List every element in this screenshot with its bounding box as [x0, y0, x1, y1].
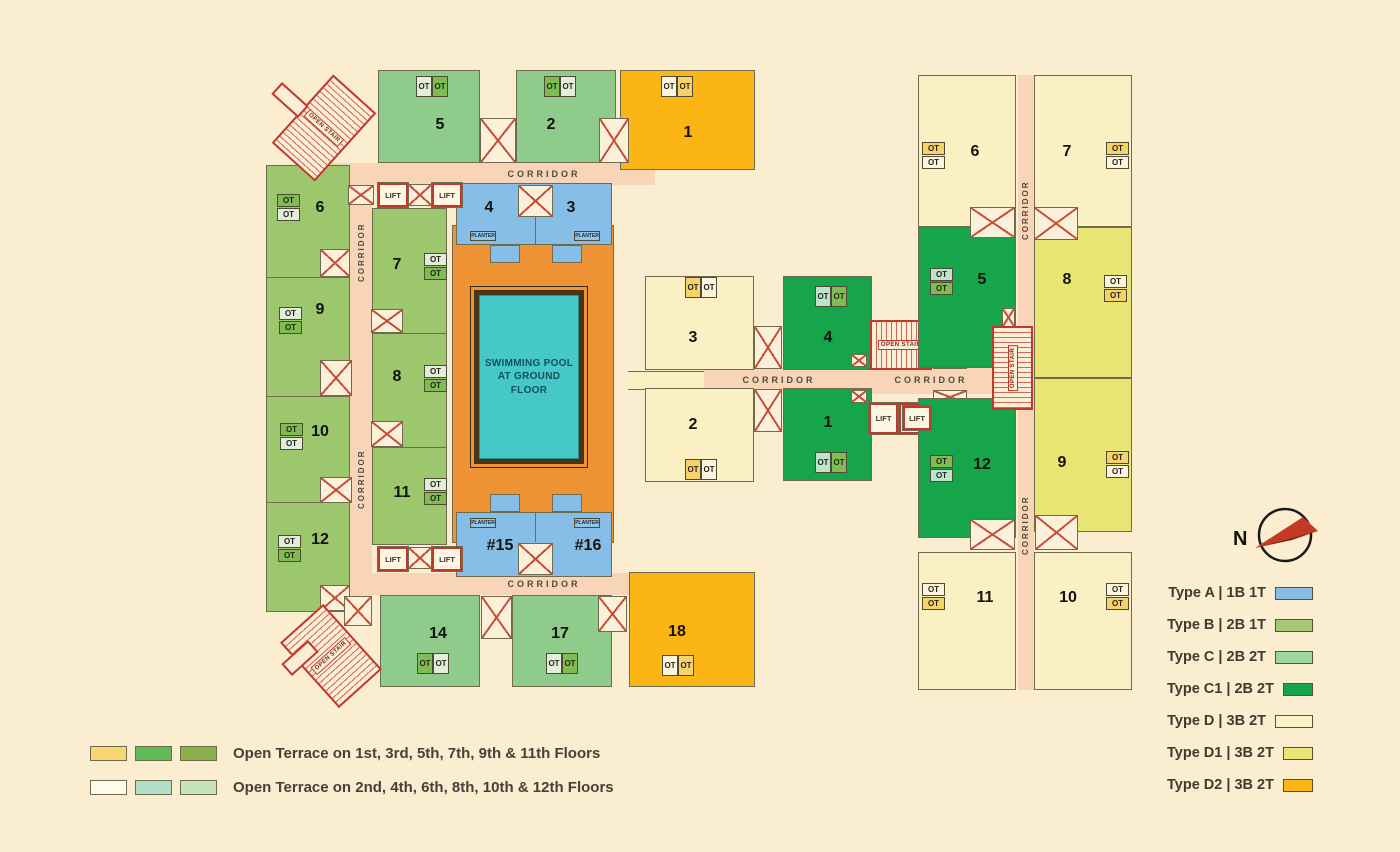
type-legend-row: Type D | 3B 2T [1167, 713, 1313, 729]
unit-number: 4 [824, 329, 833, 347]
open-terrace-badge: OT [416, 76, 432, 97]
unit-divider [266, 396, 350, 397]
open-terrace-badge: OT [278, 549, 301, 562]
open-terrace-badge: OT [922, 142, 945, 155]
unit-number: 10 [311, 423, 329, 441]
open-terrace-badge: OT [1106, 597, 1129, 610]
type-legend-swatch [1275, 715, 1313, 728]
unit-number: 7 [393, 256, 402, 274]
open-terrace-badge: OT [424, 253, 447, 266]
open-terrace-badge: OT [662, 655, 678, 676]
lift-box: LIFT [378, 547, 408, 571]
type-legend-label: Type C1 | 2B 2T [1167, 681, 1274, 697]
shaft-x-box [344, 596, 372, 626]
open-terrace-badge: OT [279, 321, 302, 334]
open-stair-label: OPEN STAIR [310, 637, 351, 675]
lift-box: LIFT [903, 406, 931, 430]
open-terrace-badge: OT [417, 653, 433, 674]
open-terrace-badge: OT [277, 194, 300, 207]
planter-label: PLANTER [574, 518, 600, 528]
unit-left-15-tab [490, 494, 520, 512]
terrace-swatch [180, 746, 217, 761]
unit-right-10 [1034, 552, 1132, 690]
lift-box: LIFT [869, 403, 898, 434]
compass-icon [1252, 504, 1322, 566]
shaft-x-box [851, 354, 867, 367]
open-terrace-badge: OT [815, 452, 831, 473]
open-stair-right: OPEN STAIR [992, 326, 1033, 410]
type-legend-row: Type B | 2B 1T [1167, 617, 1313, 633]
unit-right-8 [1034, 227, 1132, 378]
terrace-swatch [180, 780, 217, 795]
open-terrace-badge: OT [278, 535, 301, 548]
unit-divider [535, 512, 536, 542]
lift-box: LIFT [378, 183, 408, 207]
terrace-swatch [135, 746, 172, 761]
shaft-x-box [1002, 308, 1015, 327]
open-terrace-badge: OT [1104, 289, 1127, 302]
open-terrace-badge: OT [277, 208, 300, 221]
open-terrace-badge: OT [279, 307, 302, 320]
unit-number: 8 [1063, 271, 1072, 289]
corridor-label: CORRIDOR [354, 445, 369, 513]
open-terrace-badge: OT [815, 286, 831, 307]
unit-number: 14 [429, 625, 447, 643]
unit-number: 12 [311, 531, 329, 549]
shaft-x-box [599, 118, 629, 163]
unit-number: 7 [1063, 143, 1072, 161]
type-legend-swatch [1275, 619, 1313, 632]
unit-number: 11 [394, 484, 411, 502]
pool-label-line2: AT GROUND FLOOR [480, 370, 578, 397]
type-legend-label: Type C | 2B 2T [1167, 649, 1266, 665]
open-terrace-badge: OT [701, 277, 717, 298]
open-terrace-badge: OT [685, 277, 701, 298]
open-terrace-badge: OT [424, 478, 447, 491]
terrace-swatch [135, 780, 172, 795]
unit-right-12 [918, 398, 1016, 538]
terrace-swatch [90, 746, 127, 761]
open-terrace-badge: OT [922, 583, 945, 596]
open-terrace-badge: OT [1106, 451, 1129, 464]
pool-water: SWIMMING POOL AT GROUND FLOOR [479, 295, 579, 459]
unit-number: 9 [316, 301, 325, 319]
corridor-label: CORRIDOR [891, 371, 971, 388]
unit-number: #15 [487, 537, 514, 555]
corridor-label: CORRIDOR [729, 371, 829, 388]
type-legend-row: Type C | 2B 2T [1167, 649, 1313, 665]
unit-divider [372, 333, 447, 334]
shaft-x-box [598, 596, 627, 632]
shaft-x-box [408, 184, 432, 206]
open-terrace-badge: OT [930, 469, 953, 482]
open-terrace-badge: OT [560, 76, 576, 97]
planter-label: PLANTER [470, 231, 496, 241]
shaft-x-box [1034, 207, 1078, 240]
open-terrace-badge: OT [677, 76, 693, 97]
swimming-pool: SWIMMING POOL AT GROUND FLOOR [470, 286, 588, 468]
unit-number: 2 [547, 116, 556, 134]
shaft-x-box [371, 309, 403, 333]
unit-number: 17 [551, 625, 569, 643]
open-terrace-badge: OT [544, 76, 560, 97]
open-terrace-badge: OT [432, 76, 448, 97]
type-legend-label: Type D1 | 3B 2T [1167, 745, 1274, 761]
type-legend-row: Type C1 | 2B 2T [1167, 681, 1313, 697]
open-terrace-badge: OT [424, 267, 447, 280]
unit-divider [372, 447, 447, 448]
corridor-label: CORRIDOR [1018, 175, 1033, 245]
unit-number: 8 [393, 368, 402, 386]
shaft-x-box [480, 118, 516, 163]
open-stair-label: OPEN STAIR [1008, 345, 1018, 391]
shaft-x-box [348, 185, 374, 205]
shaft-x-box [970, 519, 1015, 550]
shaft-x-box [851, 390, 867, 403]
planter-label: PLANTER [574, 231, 600, 241]
unit-divider [266, 277, 350, 278]
lift-box: LIFT [432, 547, 462, 571]
unit-divider [535, 217, 536, 245]
open-terrace-badge: OT [701, 459, 717, 480]
type-legend-swatch [1283, 779, 1313, 792]
shaft-x-box [754, 389, 782, 432]
type-legend-swatch [1275, 651, 1313, 664]
shaft-x-box [1035, 515, 1078, 550]
shaft-x-box [518, 185, 553, 217]
unit-number: 11 [977, 589, 994, 607]
shaft-x-box [970, 207, 1015, 238]
shaft-x-box [481, 596, 512, 639]
unit-number: 3 [567, 199, 576, 217]
open-terrace-badge: OT [1106, 465, 1129, 478]
unit-number: 9 [1058, 454, 1067, 472]
type-legend-label: Type D2 | 3B 2T [1167, 777, 1274, 793]
open-terrace-badge: OT [661, 76, 677, 97]
unit-number: 3 [689, 329, 698, 347]
open-stair-label: OPEN STAIR [303, 109, 344, 147]
open-terrace-badge: OT [546, 653, 562, 674]
open-terrace-badge: OT [685, 459, 701, 480]
type-legend-row: Type D2 | 3B 2T [1167, 777, 1313, 793]
type-legend-label: Type D | 3B 2T [1167, 713, 1266, 729]
unit-number: 5 [978, 271, 987, 289]
shaft-x-box [320, 249, 350, 277]
type-legend-swatch [1283, 683, 1313, 696]
type-legend-row: Type D1 | 3B 2T [1167, 745, 1313, 761]
corridor-label: CORRIDOR [489, 576, 599, 591]
open-terrace-badge: OT [922, 156, 945, 169]
terrace-legend-label: Open Terrace on 1st, 3rd, 5th, 7th, 9th … [233, 745, 600, 762]
pool-label-line1: SWIMMING POOL [480, 357, 578, 371]
unit-right-11 [918, 552, 1016, 690]
shaft-x-box [754, 326, 782, 369]
terrace-swatch [90, 780, 127, 795]
open-terrace-badge: OT [1106, 583, 1129, 596]
unit-number: 18 [668, 623, 686, 641]
unit-number: 4 [485, 199, 494, 217]
unit-number: 6 [316, 199, 325, 217]
shaft-x-box [408, 547, 432, 569]
open-terrace-badge: OT [562, 653, 578, 674]
open-terrace-badge: OT [831, 286, 847, 307]
type-legend-swatch [1283, 747, 1313, 760]
open-terrace-badge: OT [280, 437, 303, 450]
open-terrace-badge: OT [922, 597, 945, 610]
unit-number: #16 [575, 537, 602, 555]
unit-number: 2 [689, 416, 698, 434]
type-legend-label: Type B | 2B 1T [1167, 617, 1266, 633]
shaft-x-box [518, 543, 553, 575]
open-terrace-badge: OT [424, 379, 447, 392]
unit-left-4-tab [490, 245, 520, 263]
unit-number: 10 [1059, 589, 1077, 607]
terrace-legend-label: Open Terrace on 2nd, 4th, 6th, 8th, 10th… [233, 779, 614, 796]
corridor-label: CORRIDOR [1018, 490, 1033, 560]
open-terrace-badge: OT [433, 653, 449, 674]
unit-number: 5 [436, 116, 445, 134]
unit-number: 12 [973, 456, 991, 474]
corridor-label: CORRIDOR [489, 166, 599, 181]
corridor-label: CORRIDOR [354, 218, 369, 286]
open-terrace-badge: OT [280, 423, 303, 436]
open-terrace-badge: OT [831, 452, 847, 473]
unit-left-3-tab [552, 245, 582, 263]
terrace-legend-row: Open Terrace on 2nd, 4th, 6th, 8th, 10th… [90, 779, 614, 795]
shaft-x-box [320, 477, 352, 503]
open-terrace-badge: OT [678, 655, 694, 676]
unit-number: 1 [824, 414, 833, 432]
open-terrace-badge: OT [930, 455, 953, 468]
unit-left-16-tab [552, 494, 582, 512]
open-terrace-badge: OT [930, 268, 953, 281]
open-terrace-badge: OT [1106, 142, 1129, 155]
type-legend-swatch [1275, 587, 1313, 600]
pool-border-band: SWIMMING POOL AT GROUND FLOOR [474, 290, 584, 464]
type-legend-label: Type A | 1B 1T [1167, 585, 1266, 601]
north-label: N [1233, 528, 1247, 551]
shaft-x-box [371, 421, 403, 447]
planter-label: PLANTER [470, 518, 496, 528]
open-terrace-badge: OT [1104, 275, 1127, 288]
open-terrace-badge: OT [424, 492, 447, 505]
pool-label: SWIMMING POOL AT GROUND FLOOR [480, 357, 578, 398]
unit-number: 6 [971, 143, 980, 161]
floor-plan-canvas: SWIMMING POOL AT GROUND FLOOR LIFT LIFT … [0, 0, 1400, 852]
open-terrace-badge: OT [1106, 156, 1129, 169]
type-legend-row: Type A | 1B 1T [1167, 585, 1313, 601]
lift-box: LIFT [432, 183, 462, 207]
shaft-x-box [320, 360, 352, 396]
terrace-legend-row: Open Terrace on 1st, 3rd, 5th, 7th, 9th … [90, 745, 600, 761]
open-terrace-badge: OT [930, 282, 953, 295]
open-terrace-badge: OT [424, 365, 447, 378]
unit-number: 1 [684, 124, 693, 142]
